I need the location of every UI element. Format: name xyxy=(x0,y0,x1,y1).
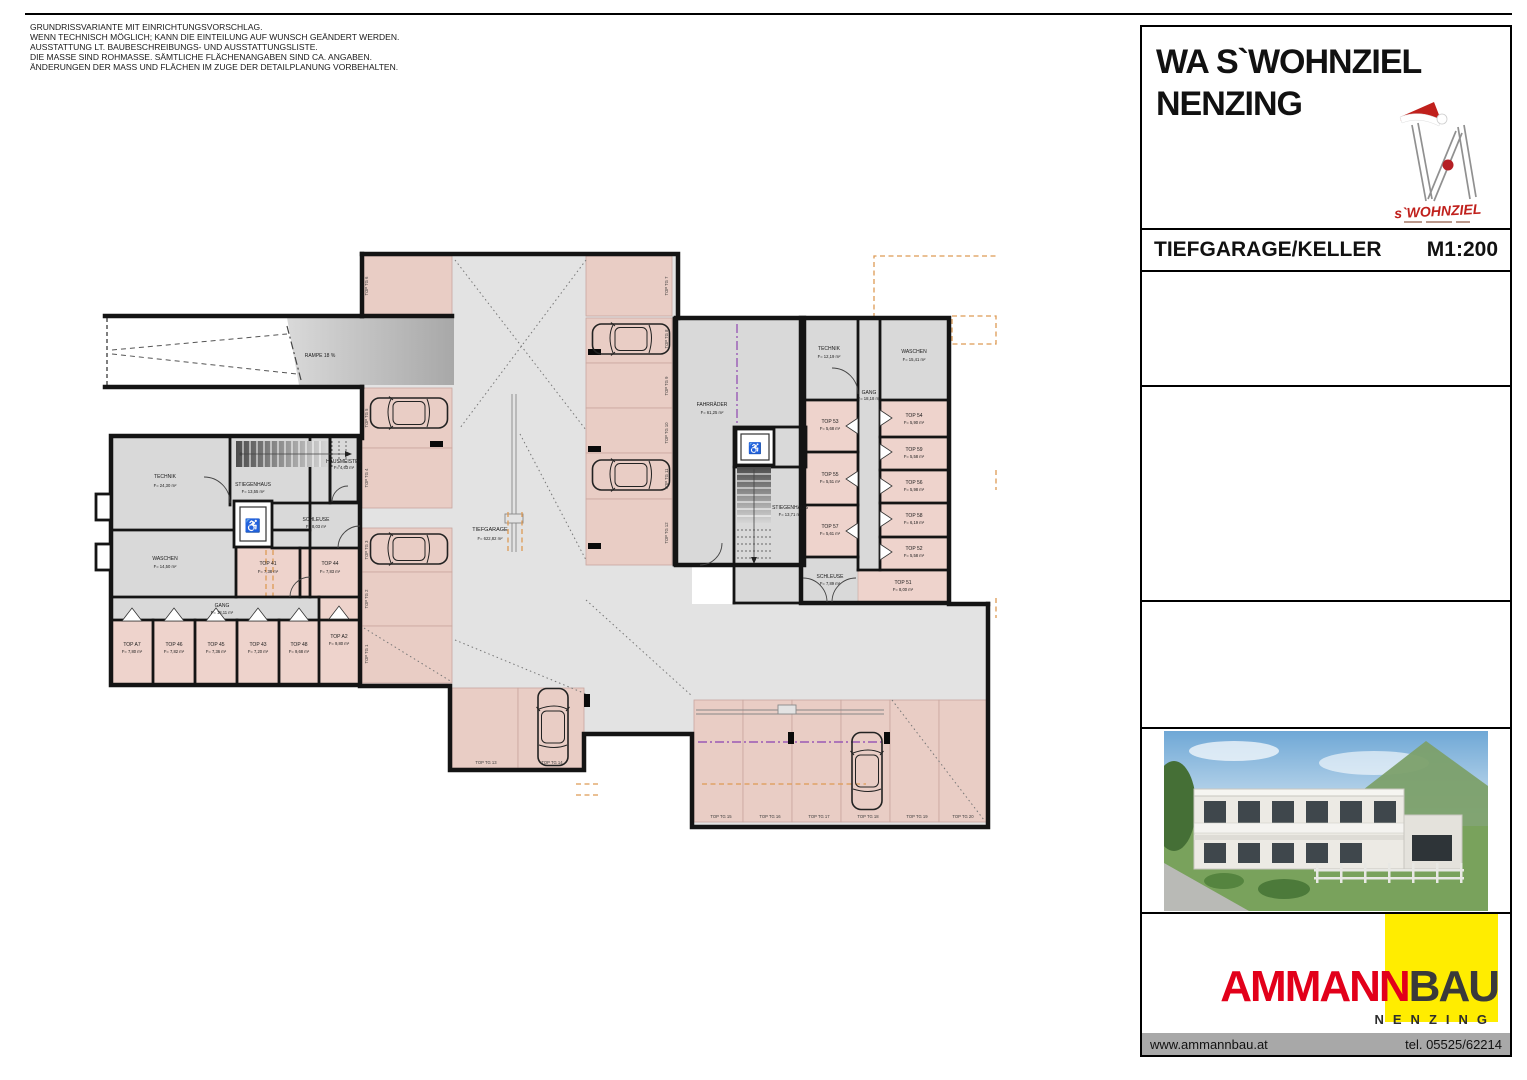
parking-spot xyxy=(362,256,452,316)
empty-cell xyxy=(1142,387,1510,602)
logo-tagline-marks xyxy=(1404,221,1470,223)
room-name: TOP 54 xyxy=(905,413,922,419)
room-name: GANG xyxy=(215,603,230,609)
room-name: TOP 52 xyxy=(905,546,922,552)
room-area: F= 7,20 m² xyxy=(248,649,269,654)
company-logo: AMMANNBAU xyxy=(1152,965,1498,1009)
svg-text:TOP TG 15: TOP TG 15 xyxy=(710,814,732,819)
room-area: F= 13,55 m² xyxy=(242,489,265,494)
svg-text:TOP TG 20: TOP TG 20 xyxy=(952,814,974,819)
room-name: TOP 46 xyxy=(165,642,182,648)
parking-spot xyxy=(586,499,672,565)
room-area: F= 9,80 m² xyxy=(329,641,350,646)
room-name: WASCHEN xyxy=(901,349,927,355)
room-area: F= 14,50 m² xyxy=(154,564,177,569)
room-area: F= 9,68 m² xyxy=(289,649,310,654)
svg-text:TOP TG 19: TOP TG 19 xyxy=(906,814,928,819)
room-area: F= 8,00 m² xyxy=(893,587,914,592)
room-name: TOP 55 xyxy=(821,472,838,478)
svg-text:TOP TG 14: TOP TG 14 xyxy=(541,760,563,765)
parking-spot xyxy=(362,448,452,508)
elevator-right: ♿ xyxy=(736,429,774,465)
room-area: F= 5,68 m² xyxy=(820,426,841,431)
svg-text:TOP TG 12: TOP TG 12 xyxy=(664,522,669,544)
room-name: FAHRRÄDER xyxy=(697,401,728,408)
parking-spot xyxy=(518,688,584,768)
room-name: TOP 57 xyxy=(821,524,838,530)
room-area: F= 5,58 m² xyxy=(904,454,925,459)
svg-text:TOP TG 2: TOP TG 2 xyxy=(364,589,369,609)
room-area: F= 5,51 m² xyxy=(820,479,841,484)
parking-spot xyxy=(362,572,452,626)
room-name: TOP 53 xyxy=(821,419,838,425)
plan-sheet: GRUNDRISSVARIANTE MIT EINRICHTUNGSVORSCH… xyxy=(0,0,1527,1080)
svg-text:TOP TG 6: TOP TG 6 xyxy=(364,276,369,296)
room-area: F= 7,36 m² xyxy=(206,649,227,654)
room-name: STIEGENHAUS xyxy=(235,482,272,488)
project-title-line1: WA S`WOHNZIEL xyxy=(1156,41,1421,83)
parking-spot xyxy=(362,388,452,448)
room-area: F= 7,89 m² xyxy=(820,581,841,586)
room-name: TOP 45 xyxy=(207,642,224,648)
room-area: F= 5,58 m² xyxy=(904,553,925,558)
room-area: F= 7,80 m² xyxy=(122,649,143,654)
wheelchair-icon: ♿ xyxy=(748,442,762,455)
footer-bar: www.ammannbau.at tel. 05525/62214 xyxy=(1142,1033,1510,1055)
website-text: www.ammannbau.at xyxy=(1150,1037,1268,1052)
ramp-slope xyxy=(287,318,454,385)
room-area: F= 24,30 m² xyxy=(154,483,177,488)
drawing-title-row: TIEFGARAGE/KELLER M1:200 xyxy=(1142,230,1510,272)
svg-text:TOP TG 13: TOP TG 13 xyxy=(475,760,497,765)
room-area: F= 5,98 m² xyxy=(904,487,925,492)
empty-cell xyxy=(1142,272,1510,387)
brand-name-dark: BAU xyxy=(1409,962,1498,1011)
swohnziel-logo-icon: s`WOHNZIEL xyxy=(1380,89,1496,227)
room-name: TOP A7 xyxy=(123,642,141,648)
logo-dot xyxy=(1443,160,1454,171)
svg-text:TOP TG 1: TOP TG 1 xyxy=(364,644,369,664)
room-name: TOP 59 xyxy=(905,447,922,453)
floor-plan-svg: ♿ ♿ xyxy=(0,0,1140,1080)
svg-text:TOP TG 4: TOP TG 4 xyxy=(364,468,369,488)
room-area: F= 7,38 m² xyxy=(258,569,279,574)
room-name: TOP 43 xyxy=(249,642,266,648)
room-name: RAMPE 18 % xyxy=(305,353,336,359)
room-area: F= 18,18 m² xyxy=(858,396,881,401)
building-photo xyxy=(1164,731,1488,911)
empty-cell xyxy=(1142,602,1510,729)
room-area: F= 13,71 m² xyxy=(779,512,802,517)
svg-text:TOP TG 7: TOP TG 7 xyxy=(664,276,669,296)
room-name: TOP 41 xyxy=(259,561,276,567)
svg-text:TOP TG 16: TOP TG 16 xyxy=(759,814,781,819)
room-area: F= 15,41 m² xyxy=(903,357,926,362)
title-block-panel: WA S`WOHNZIEL NENZING s`WOHNZIEL xyxy=(1140,25,1512,1057)
room-area: F= 5,61 m² xyxy=(820,531,841,536)
photo-cell xyxy=(1142,729,1510,914)
parking-spot xyxy=(586,256,672,316)
room-name: TIEFGARAGE xyxy=(472,527,508,533)
brand-city: NENZING xyxy=(1375,1012,1497,1027)
room-area: F= 4,63 m² xyxy=(334,465,355,470)
phone-text: tel. 05525/62214 xyxy=(1405,1037,1502,1052)
svg-text:TOP TG 8: TOP TG 8 xyxy=(664,329,669,349)
room-name: TOP 58 xyxy=(905,513,922,519)
room-area: F= 7,82 m² xyxy=(164,649,185,654)
room-name: STIEGENHAUS xyxy=(772,505,809,511)
scale-label: M1:200 xyxy=(1427,238,1498,262)
svg-text:TOP TG 3: TOP TG 3 xyxy=(364,540,369,560)
room-name: TECHNIK xyxy=(154,474,177,480)
svg-text:TOP TG 5: TOP TG 5 xyxy=(364,408,369,428)
logo-wordmark: s`WOHNZIEL xyxy=(1394,201,1482,222)
room-name: TOP 56 xyxy=(905,480,922,486)
room-area: F= 622,82 m² xyxy=(477,536,503,541)
room-name: TECHNIK xyxy=(818,346,841,352)
room-area: F= 61,25 m² xyxy=(701,410,724,415)
room-name: WASCHEN xyxy=(152,556,178,562)
svg-text:TOP TG 10: TOP TG 10 xyxy=(664,422,669,444)
room-name: TOP 51 xyxy=(894,580,911,586)
room-area: F= 18,11 m² xyxy=(211,610,234,615)
room-name: TOP A2 xyxy=(330,634,348,640)
parking-spot xyxy=(939,700,988,822)
room-area: F= 12,19 m² xyxy=(818,354,841,359)
parking-spot xyxy=(694,700,743,822)
brand-name-red: AMMANN xyxy=(1220,962,1408,1011)
svg-text:TOP TG 17: TOP TG 17 xyxy=(808,814,830,819)
wheelchair-icon: ♿ xyxy=(245,518,261,533)
title-cell: WA S`WOHNZIEL NENZING s`WOHNZIEL xyxy=(1142,27,1510,230)
svg-text:TOP TG 9: TOP TG 9 xyxy=(664,376,669,396)
room-name: SCHLEUSE xyxy=(303,517,331,523)
svg-text:TOP TG 11: TOP TG 11 xyxy=(664,468,669,490)
room-name: TOP 44 xyxy=(321,561,338,567)
parking-spot xyxy=(452,688,518,768)
room-area: F= 6,19 m² xyxy=(904,520,925,525)
parking-spot xyxy=(586,363,672,408)
parking-spot xyxy=(743,700,792,822)
room-area: F= 5,90 m² xyxy=(904,420,925,425)
svg-text:TOP TG 18: TOP TG 18 xyxy=(857,814,879,819)
room-name: SCHLEUSE xyxy=(817,574,845,580)
elevator-left: ♿ xyxy=(234,501,272,547)
parking-spot xyxy=(890,700,939,822)
room-name: TOP 48 xyxy=(290,642,307,648)
drawing-title: TIEFGARAGE/KELLER xyxy=(1154,238,1382,262)
room-area: F= 7,83 m² xyxy=(320,569,341,574)
room-area: F= 8,03 m² xyxy=(306,524,327,529)
company-logo-cell: AMMANNBAU NENZING www.ammannbau.at tel. … xyxy=(1142,914,1510,1055)
parking-spot xyxy=(792,700,841,822)
